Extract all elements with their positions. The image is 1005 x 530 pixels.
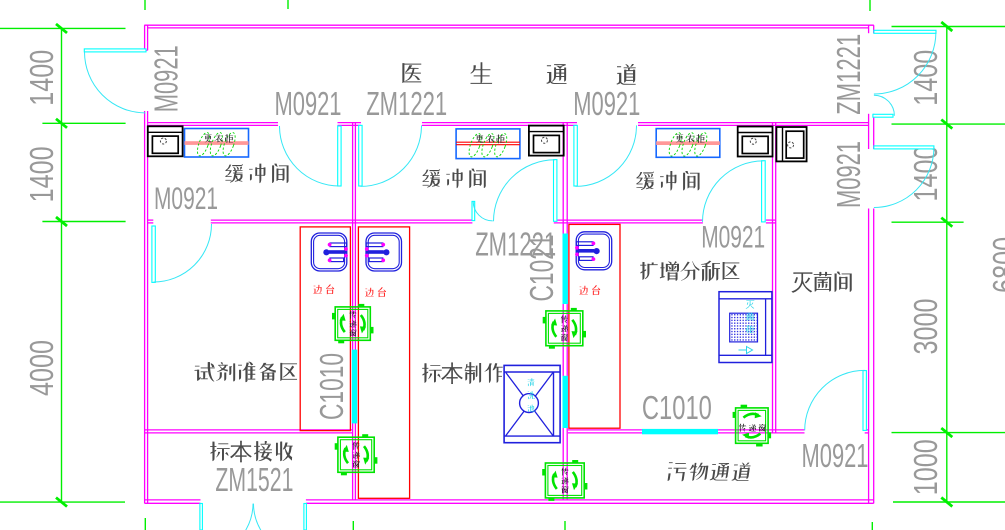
svg-text:C1021: C1021 bbox=[524, 235, 561, 302]
svg-text:C1010: C1010 bbox=[642, 390, 712, 427]
svg-text:M0921: M0921 bbox=[154, 180, 218, 216]
svg-text:M0921: M0921 bbox=[275, 86, 342, 123]
svg-text:C1010: C1010 bbox=[314, 353, 351, 420]
svg-text:ZM1521: ZM1521 bbox=[215, 462, 293, 499]
svg-text:M0921: M0921 bbox=[802, 438, 869, 475]
svg-text:ZM1221: ZM1221 bbox=[831, 34, 868, 115]
svg-text:1000: 1000 bbox=[908, 439, 945, 495]
svg-text:1400: 1400 bbox=[908, 50, 945, 106]
svg-text:M0921: M0921 bbox=[573, 86, 640, 123]
svg-text:ZM1221: ZM1221 bbox=[366, 86, 447, 123]
svg-text:6800: 6800 bbox=[987, 237, 1005, 293]
svg-text:M0921: M0921 bbox=[831, 141, 868, 208]
svg-text:M0921: M0921 bbox=[149, 45, 186, 112]
svg-text:M0921: M0921 bbox=[701, 219, 765, 255]
svg-text:4000: 4000 bbox=[24, 340, 61, 396]
svg-text:1400: 1400 bbox=[24, 146, 61, 202]
svg-text:1400: 1400 bbox=[24, 50, 61, 106]
svg-text:3000: 3000 bbox=[908, 299, 945, 355]
